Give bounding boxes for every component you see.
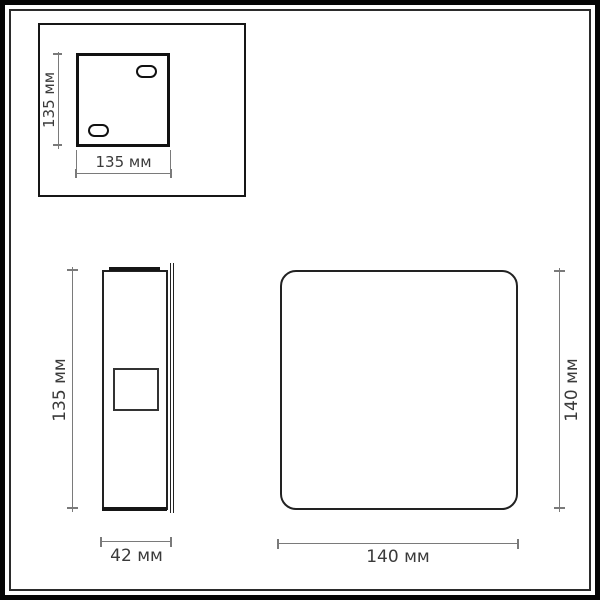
front-view-width-label: 140 мм (278, 547, 518, 567)
side-view-depth-label: 42 мм (101, 546, 172, 566)
dim-tick (554, 507, 565, 509)
side-view-front-plate-edge (170, 263, 174, 513)
mounting-hole-bottom-left (88, 124, 109, 137)
front-view-height-dim-line (559, 268, 560, 512)
mounting-hole-top-right (136, 65, 157, 78)
drawing-sheet: 135 мм 135 мм 135 мм 42 мм 140 мм 140 мм (0, 0, 600, 600)
dim-tick (67, 507, 78, 509)
front-view-width-dim-line (278, 543, 518, 544)
dim-tick (554, 270, 565, 272)
side-view-height-dim-line (72, 267, 73, 512)
side-view-top-gasket (109, 267, 160, 271)
side-view-depth-dim-line (101, 541, 172, 542)
side-view-height-label: 135 мм (50, 330, 70, 450)
front-view-height-label: 140 мм (562, 330, 582, 450)
side-view-driver-box (113, 368, 159, 411)
top-view-width-dim-line (76, 173, 171, 174)
top-view-width-label: 135 мм (76, 152, 171, 172)
dim-tick (67, 269, 78, 271)
front-view-body (280, 270, 518, 510)
top-view-height-label: 135 мм (39, 40, 59, 160)
side-view-bottom-gasket (102, 507, 167, 511)
